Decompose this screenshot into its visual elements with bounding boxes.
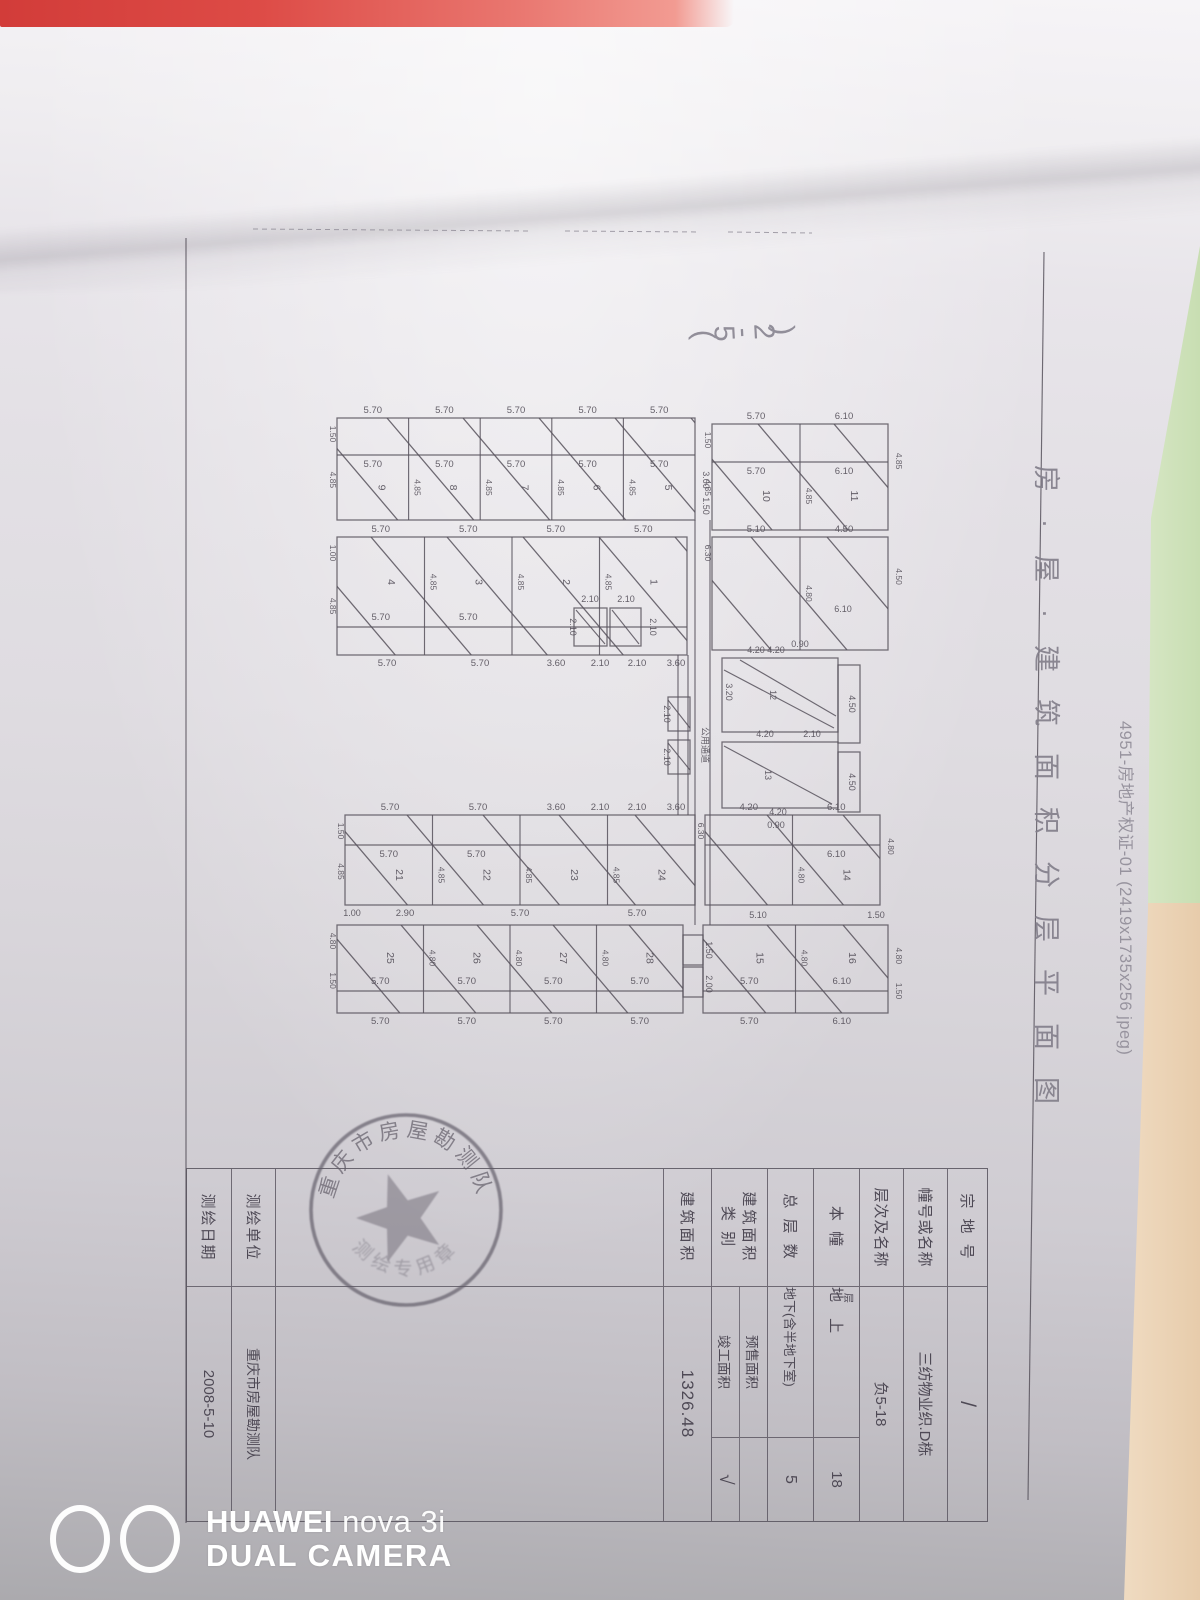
- row-label: 建筑面积: [664, 1169, 711, 1287]
- table-row: 层次及名称 负5-18: [859, 1169, 903, 1521]
- watermark-model: nova 3i: [342, 1504, 445, 1539]
- row-label: 幢号或名称: [904, 1169, 947, 1287]
- table-row: 幢号或名称 三纺物业织.D栋: [903, 1169, 947, 1521]
- row-value: 地下(含半地下室) 5: [768, 1287, 813, 1521]
- photo-of-document: 4.854.854.854.855.705.705.705.705.705.70…: [0, 0, 1200, 1600]
- row-label: 建筑面积 类 别: [712, 1169, 767, 1287]
- completed-area-label: 竣工面积: [712, 1287, 739, 1437]
- row-label: 测绘单位: [232, 1169, 275, 1287]
- svg-text:重庆市房屋勘测队: 重庆市房屋勘测队: [316, 1118, 497, 1201]
- row-label: 测绘日期: [187, 1169, 231, 1287]
- row-value: /: [948, 1287, 987, 1521]
- area-type-cells: 预售面积 竣工面积 √: [712, 1287, 767, 1521]
- table-row: 总 层 数 地下(含半地下室) 5: [767, 1169, 813, 1521]
- row-label: 宗 地 号: [948, 1169, 987, 1287]
- handwritten-note: (5-2): [656, 296, 829, 369]
- file-reference-note: 4951-房地产权证-01 (2419x1735x256 jpeg): [1115, 721, 1139, 1221]
- basement-count: 5: [768, 1437, 813, 1521]
- document-title-vertical: 房·屋·建筑面积分层平面图: [1038, 465, 1068, 1165]
- svg-text:测绘专用章: 测绘专用章: [348, 1236, 464, 1280]
- huawei-watermark: HUAWEI nova 3i DUAL CAMERA: [50, 1505, 453, 1573]
- floors-count: 18: [814, 1437, 859, 1521]
- presale-area-label: 预售面积: [740, 1287, 767, 1437]
- row-value: 三纺物业织.D栋: [904, 1287, 947, 1521]
- pink-edge-strip: [0, 0, 734, 27]
- dual-camera-icon: [50, 1505, 180, 1573]
- table-row: 建筑面积 1326.48: [663, 1169, 711, 1521]
- table-row: 测绘单位 重庆市房屋勘测队: [231, 1169, 275, 1521]
- sub-label: 层: [842, 1293, 857, 1303]
- table-row: 测绘日期 2008-5-10: [187, 1169, 231, 1521]
- row-value: 负5-18: [860, 1287, 903, 1521]
- watermark-brand: HUAWEI: [206, 1504, 333, 1539]
- watermark-line2: DUAL CAMERA: [206, 1539, 453, 1573]
- table-row: 宗 地 号 /: [947, 1169, 987, 1521]
- row-label: 本 幢: [814, 1169, 859, 1287]
- survey-unit-value: 重庆市房屋勘测队: [232, 1287, 275, 1521]
- survey-date-value: 2008-5-10: [187, 1287, 231, 1521]
- total-area-value: 1326.48: [664, 1287, 711, 1521]
- row-value: 层 地 上 18: [814, 1287, 859, 1521]
- checkmark: √: [712, 1437, 739, 1521]
- row-label: 总 层 数: [768, 1169, 813, 1287]
- company-seal: 重庆市房屋勘测队 测绘专用章: [298, 1100, 514, 1320]
- row-label: 层次及名称: [860, 1169, 903, 1287]
- table-row: 本 幢 层 地 上 18: [813, 1169, 859, 1521]
- table-row: 建筑面积 类 别 预售面积 竣工面积 √: [711, 1169, 767, 1521]
